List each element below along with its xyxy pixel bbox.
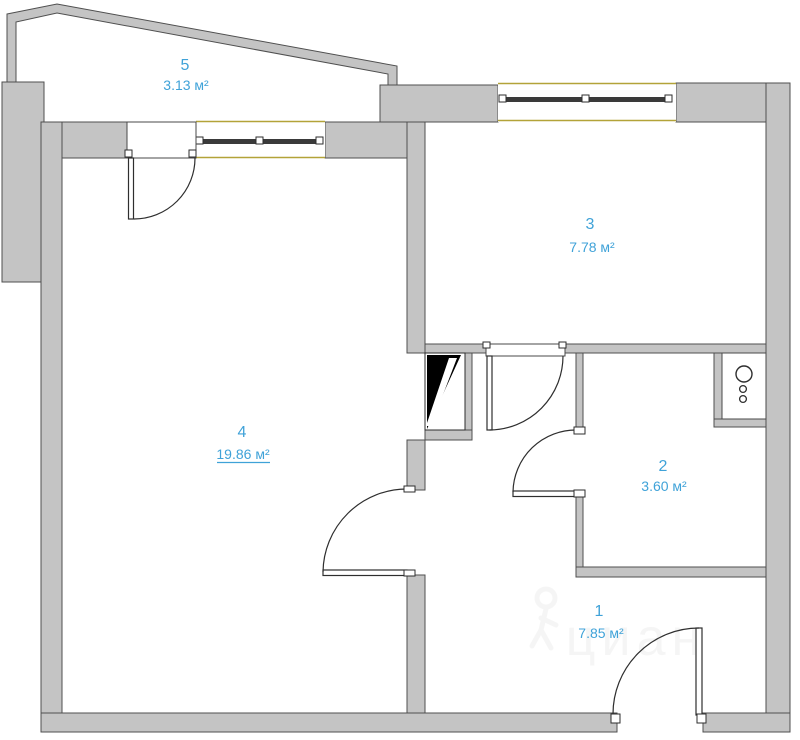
wall-room4-room1-lower <box>407 575 425 713</box>
wall-niche-left <box>714 353 722 427</box>
wall-hall-room2-lower <box>576 495 583 567</box>
window-handle <box>582 95 589 102</box>
door-room4 <box>323 486 415 576</box>
heater-knob-circle <box>740 386 747 393</box>
door-jamb <box>611 714 620 723</box>
window-handle <box>256 137 263 144</box>
wall-mid-left <box>425 344 486 353</box>
door-swing-icon <box>134 158 195 219</box>
wall-balcony-floor-right <box>325 122 407 158</box>
room1-area-label: 7.85 м² <box>578 625 624 641</box>
wall-vent-bottom <box>425 430 472 440</box>
door-swing-icon <box>513 430 577 492</box>
door-swing-icon <box>490 356 564 430</box>
wall-room3-top-left <box>380 85 498 122</box>
room3-number-label: 3 <box>586 216 595 233</box>
room1-number-label: 1 <box>595 603 604 620</box>
heater-knob-circle <box>740 396 747 403</box>
door-frame <box>486 344 565 356</box>
wall-bottom-left <box>41 713 617 732</box>
wall-niche-bottom <box>714 419 766 427</box>
wall-room4-room1-upper <box>407 440 425 490</box>
room5-area-label: 3.13 м² <box>163 77 209 93</box>
water-heater-icon <box>722 353 766 419</box>
door-jamb <box>125 150 132 157</box>
window-room4-balcony <box>196 121 325 158</box>
door-room3 <box>483 342 566 430</box>
door-jamb <box>559 342 566 348</box>
person-pin-body <box>532 609 556 648</box>
door-jamb <box>574 490 585 497</box>
wall-vent-right <box>465 353 472 440</box>
room5-number-label: 5 <box>181 57 190 74</box>
door-leaf <box>487 356 492 430</box>
room2-number-label: 2 <box>659 458 668 475</box>
wall-left-exterior <box>41 122 62 732</box>
room3-area-label: 7.78 м² <box>569 239 615 255</box>
wall-balcony-parapet <box>7 4 397 85</box>
wall-room4-room3 <box>407 122 425 353</box>
door-room2 <box>513 427 585 497</box>
wall-right-exterior <box>766 83 790 732</box>
room4-area-label: 19.86 м² <box>216 446 270 462</box>
door-jamb <box>483 342 490 348</box>
wall-room2-bottom <box>576 567 766 577</box>
window-handle <box>499 95 506 102</box>
wall-mid-right <box>565 344 766 353</box>
door-leaf <box>513 491 577 497</box>
room2-area-label: 3.60 м² <box>641 478 687 494</box>
floor-plan-drawing: циан 5 3.13 м² 3 7.78 м² 4 19.86 м² 2 3.… <box>0 0 800 740</box>
person-pin-icon <box>537 589 555 607</box>
floor-plan-canvas: циан 5 3.13 м² 3 7.78 м² 4 19.86 м² 2 3.… <box>0 0 800 740</box>
window-handle <box>316 137 323 144</box>
vent-shaft-icon <box>425 353 465 430</box>
window-handle <box>665 95 672 102</box>
door-balcony <box>125 122 196 219</box>
window-room3-exterior <box>498 83 676 122</box>
door-jamb <box>404 570 415 576</box>
wall-left-pillar <box>2 82 44 282</box>
door-leaf <box>323 570 407 576</box>
door-leaf <box>129 158 134 219</box>
wall-hall-room2-upper <box>576 353 583 430</box>
door-frame <box>127 122 196 158</box>
wall-balcony-floor-left <box>62 122 127 158</box>
window-handle <box>196 137 203 144</box>
door-jamb <box>189 150 196 157</box>
heater-tank-circle <box>736 366 752 382</box>
wall-bottom-right <box>703 713 790 732</box>
room4-number-label: 4 <box>238 424 247 441</box>
door-swing-icon <box>323 489 407 572</box>
door-jamb <box>404 486 415 492</box>
door-jamb <box>574 427 585 434</box>
door-jamb <box>697 714 706 723</box>
